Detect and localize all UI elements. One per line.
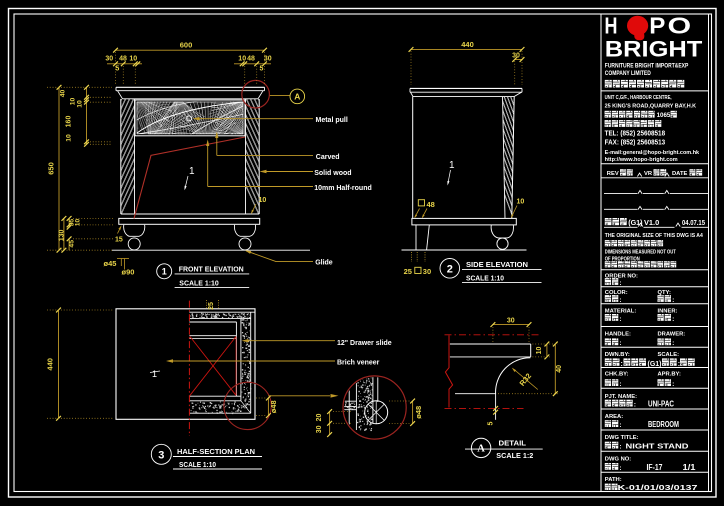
svg-text:160: 160: [66, 116, 73, 128]
svg-text::: :: [619, 340, 621, 347]
svg-text:NIGHT STAND: NIGHT STAND: [626, 442, 689, 451]
svg-text:IF-17: IF-17: [647, 463, 663, 472]
svg-text:30: 30: [507, 317, 515, 324]
svg-text:ø45: ø45: [104, 259, 117, 268]
svg-text:INNER:: INNER:: [658, 308, 678, 314]
svg-text:ø48: ø48: [269, 400, 278, 413]
svg-text:AREA:: AREA:: [605, 414, 623, 420]
svg-text::: :: [619, 297, 621, 304]
svg-text:QTY:: QTY:: [658, 290, 671, 296]
svg-text:E-mail:general@hopo-bright.com: E-mail:general@hopo-bright.com.hk: [605, 150, 700, 156]
svg-text::: :: [621, 361, 623, 368]
svg-text::: :: [672, 297, 674, 304]
svg-text:HALF-SECTION PLAN: HALF-SECTION PLAN: [177, 447, 255, 456]
svg-text:1: 1: [162, 267, 167, 277]
svg-text:5: 5: [487, 421, 494, 425]
svg-text:5: 5: [115, 65, 119, 72]
svg-text:CHK.BY:: CHK.BY:: [605, 372, 629, 378]
svg-text:SCALE 1:10: SCALE 1:10: [179, 278, 219, 287]
svg-text:15: 15: [115, 236, 123, 243]
svg-text:BEDROOM: BEDROOM: [648, 420, 679, 429]
svg-text:V1.0: V1.0: [644, 218, 659, 227]
svg-text:HANDLE:: HANDLE:: [605, 331, 631, 337]
svg-text:1: 1: [189, 166, 195, 177]
svg-text:THE ORIGINAL SIZE OF THIS DWG: THE ORIGINAL SIZE OF THIS DWG IS A4: [605, 233, 703, 239]
svg-text:(G1): (G1): [648, 361, 662, 368]
svg-text:DWN.BY:: DWN.BY:: [605, 352, 630, 358]
svg-text:10: 10: [259, 197, 267, 204]
svg-text:COMPANY LIMITED: COMPANY LIMITED: [605, 70, 651, 77]
svg-text:Brich veneer: Brich veneer: [337, 360, 380, 367]
svg-text:1: 1: [449, 160, 455, 171]
svg-text:SCALE:: SCALE:: [658, 352, 680, 358]
svg-text:APR.BY:: APR.BY:: [658, 372, 681, 378]
svg-text:BRIGHT: BRIGHT: [605, 37, 703, 62]
svg-text:10: 10: [517, 199, 525, 206]
svg-text:440: 440: [46, 358, 55, 371]
svg-text:O: O: [668, 13, 692, 39]
svg-text::: :: [678, 361, 680, 368]
svg-text:SCALE 1:2: SCALE 1:2: [496, 451, 533, 460]
svg-text:600: 600: [180, 41, 193, 50]
svg-text::: :: [619, 280, 621, 287]
svg-text::: :: [634, 402, 636, 409]
svg-text:5: 5: [260, 65, 264, 72]
svg-text:UNI-PAC: UNI-PAC: [648, 400, 674, 409]
svg-text:COLOR:: COLOR:: [605, 290, 628, 296]
svg-text:10: 10: [70, 98, 77, 106]
svg-text:45: 45: [68, 240, 75, 248]
svg-text:H: H: [605, 14, 618, 40]
svg-text:Metal pull: Metal pull: [316, 117, 348, 124]
svg-text:SIDE ELEVATION: SIDE ELEVATION: [466, 260, 528, 269]
svg-text:SCALE 1:10: SCALE 1:10: [179, 460, 216, 469]
svg-text:UNIT C,G/F., HARBOUR CENTRE,: UNIT C,G/F., HARBOUR CENTRE,: [605, 95, 672, 101]
svg-text::: :: [619, 381, 621, 388]
svg-text:DWG TITLE:: DWG TITLE:: [605, 435, 639, 441]
svg-text:25: 25: [208, 302, 215, 310]
svg-text:130: 130: [59, 229, 66, 241]
svg-text:48: 48: [119, 55, 127, 62]
svg-text::: :: [619, 444, 621, 451]
svg-text:ø90: ø90: [122, 268, 135, 277]
svg-text:10: 10: [77, 100, 84, 108]
svg-text:30: 30: [105, 55, 113, 62]
svg-text:DRAWER:: DRAWER:: [658, 331, 686, 337]
svg-text:REV: REV: [607, 171, 619, 177]
svg-text:440: 440: [461, 40, 474, 49]
svg-text:A: A: [294, 92, 300, 102]
svg-text:40: 40: [556, 365, 563, 373]
svg-text:VR: VR: [644, 171, 653, 177]
svg-text:10: 10: [74, 219, 81, 227]
svg-text:10mm Half-round: 10mm Half-round: [314, 185, 372, 192]
svg-text:48: 48: [427, 200, 435, 209]
svg-text:Solid wood: Solid wood: [314, 170, 351, 177]
svg-text:SCALE 1:10: SCALE 1:10: [466, 273, 504, 282]
svg-text:10: 10: [129, 55, 137, 62]
svg-text::: :: [672, 340, 674, 347]
svg-text:30: 30: [512, 52, 520, 59]
svg-text:A: A: [477, 444, 485, 455]
svg-text::: :: [619, 465, 621, 472]
svg-text:FRONT ELEVATION: FRONT ELEVATION: [179, 264, 244, 273]
svg-text:DWG NO:: DWG NO:: [605, 457, 631, 463]
svg-text::: :: [672, 381, 674, 388]
svg-text:30: 30: [423, 267, 431, 276]
svg-text:30: 30: [264, 55, 272, 62]
svg-text::: :: [672, 316, 674, 323]
svg-text:MATERIAL:: MATERIAL:: [605, 308, 637, 314]
svg-text:Carved: Carved: [316, 154, 340, 161]
svg-text:40: 40: [60, 90, 67, 98]
svg-text:FURNITURE BRIGHT IMPORT&EXP: FURNITURE BRIGHT IMPORT&EXP: [605, 62, 689, 69]
svg-text:3: 3: [158, 449, 164, 461]
svg-text::: :: [619, 422, 621, 429]
svg-text:25 KING'S ROAD,QUARRY BAY,H.K: 25 KING'S ROAD,QUARRY BAY,H.K: [605, 104, 697, 110]
svg-text:48: 48: [247, 55, 255, 62]
svg-text:20: 20: [316, 414, 323, 422]
svg-text:K-01/01/03/0137: K-01/01/03/0137: [618, 483, 698, 492]
svg-text:10: 10: [238, 55, 246, 62]
svg-text:10: 10: [66, 134, 73, 142]
svg-text::: :: [619, 316, 621, 323]
svg-text:P: P: [649, 13, 665, 38]
svg-text:12" Drawer slide: 12" Drawer slide: [337, 340, 392, 347]
svg-text:ø48: ø48: [414, 406, 423, 419]
svg-text:FAX: (852) 25608513: FAX: (852) 25608513: [605, 140, 666, 147]
svg-text:1/1: 1/1: [683, 463, 697, 472]
svg-text:TEL: (852) 25608518: TEL: (852) 25608518: [605, 130, 666, 137]
svg-text:(G1): (G1): [628, 218, 643, 227]
svg-text:30: 30: [316, 425, 323, 433]
svg-text:04.07.15: 04.07.15: [682, 218, 705, 227]
svg-text:Glide: Glide: [315, 260, 333, 267]
svg-text:http://www.hopo-bright.com: http://www.hopo-bright.com: [605, 157, 678, 163]
svg-text:DETAIL: DETAIL: [499, 439, 527, 448]
svg-text:DATE: DATE: [672, 171, 687, 177]
svg-text:PJT. NAME:: PJT. NAME:: [605, 394, 637, 400]
svg-text:2: 2: [447, 263, 453, 275]
svg-text:1: 1: [152, 369, 157, 379]
svg-text:10: 10: [536, 347, 543, 355]
svg-text:650: 650: [47, 162, 56, 175]
svg-text:DIMENSIONS MEASURED NOT OUT: DIMENSIONS MEASURED NOT OUT: [605, 249, 677, 255]
svg-text:25: 25: [404, 267, 412, 276]
svg-text:1065: 1065: [657, 112, 671, 119]
